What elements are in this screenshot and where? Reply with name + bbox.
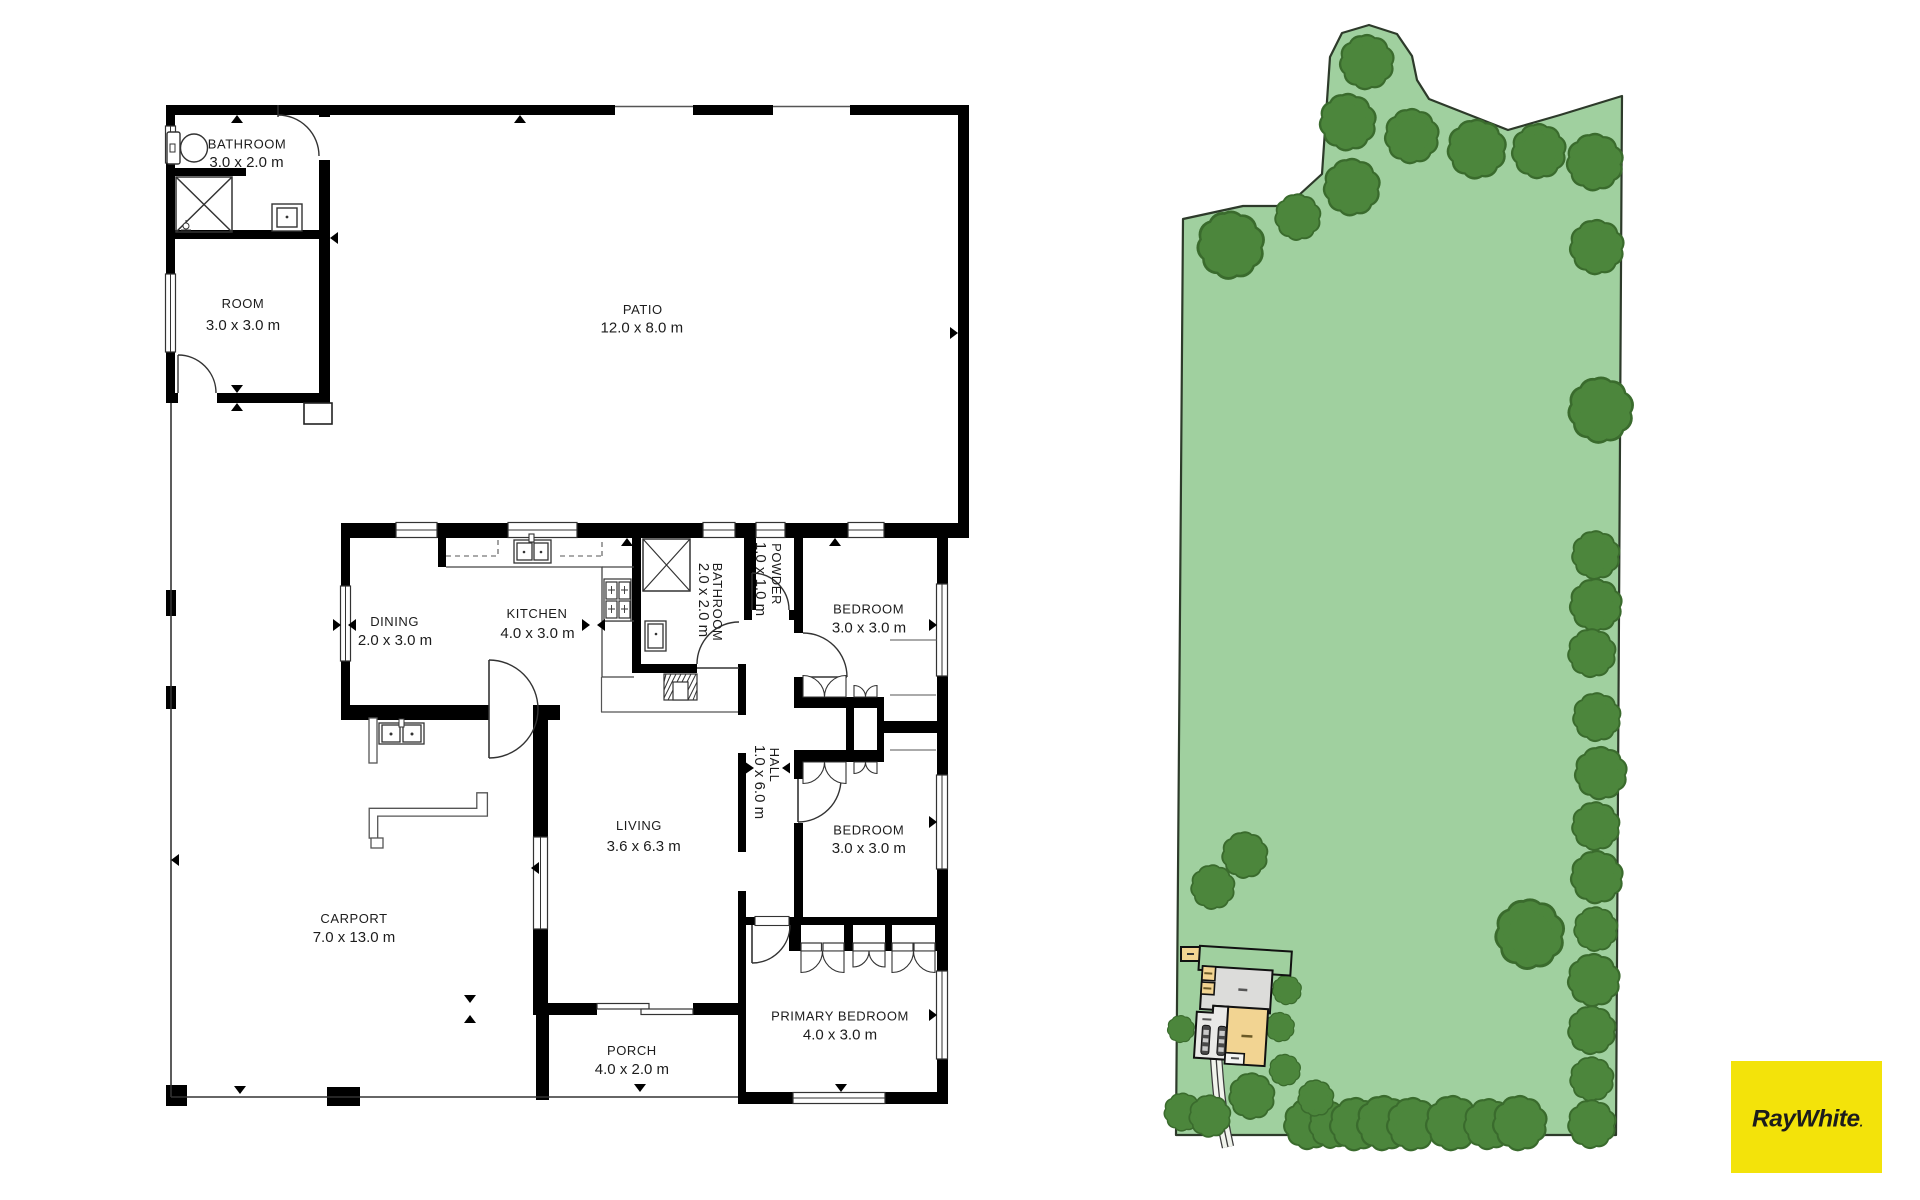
svg-text:PORCH: PORCH [607,1043,657,1058]
svg-text:PRIMARY BEDROOM: PRIMARY BEDROOM [771,1009,909,1024]
svg-text:DINING: DINING [370,614,419,629]
svg-text:PATIO: PATIO [623,302,663,317]
svg-text:3.0 x 2.0 m: 3.0 x 2.0 m [209,154,283,171]
svg-text:1.0 x 6.0 m: 1.0 x 6.0 m [751,745,768,819]
svg-text:12.0 x 8.0 m: 12.0 x 8.0 m [601,320,684,337]
svg-text:4.0 x 2.0 m: 4.0 x 2.0 m [595,1061,669,1078]
svg-text:3.6 x 6.3 m: 3.6 x 6.3 m [607,838,681,855]
svg-text:ROOM: ROOM [222,296,265,311]
svg-text:1.0 x 1.0 m: 1.0 x 1.0 m [752,542,769,616]
svg-text:POWDER: POWDER [769,543,784,605]
svg-text:LIVING: LIVING [616,818,662,833]
svg-text:2.0 x 3.0 m: 2.0 x 3.0 m [358,632,432,649]
svg-text:7.0 x 13.0 m: 7.0 x 13.0 m [313,929,396,946]
svg-text:BATHROOM: BATHROOM [208,137,287,152]
svg-text:BEDROOM: BEDROOM [833,602,904,617]
svg-text:HALL: HALL [767,748,782,783]
svg-text:KITCHEN: KITCHEN [507,606,568,621]
svg-text:2.0 x 2.0 m: 2.0 x 2.0 m [695,563,712,637]
svg-text:4.0 x 3.0 m: 4.0 x 3.0 m [500,625,574,642]
svg-text:4.0 x 3.0 m: 4.0 x 3.0 m [803,1027,877,1044]
svg-text:CARPORT: CARPORT [320,911,387,926]
svg-text:3.0 x 3.0 m: 3.0 x 3.0 m [206,317,280,334]
svg-text:RayWhite.: RayWhite. [1752,1106,1863,1133]
svg-text:3.0 x 3.0 m: 3.0 x 3.0 m [832,840,906,857]
svg-text:BEDROOM: BEDROOM [833,823,904,838]
svg-text:3.0 x 3.0 m: 3.0 x 3.0 m [832,620,906,637]
